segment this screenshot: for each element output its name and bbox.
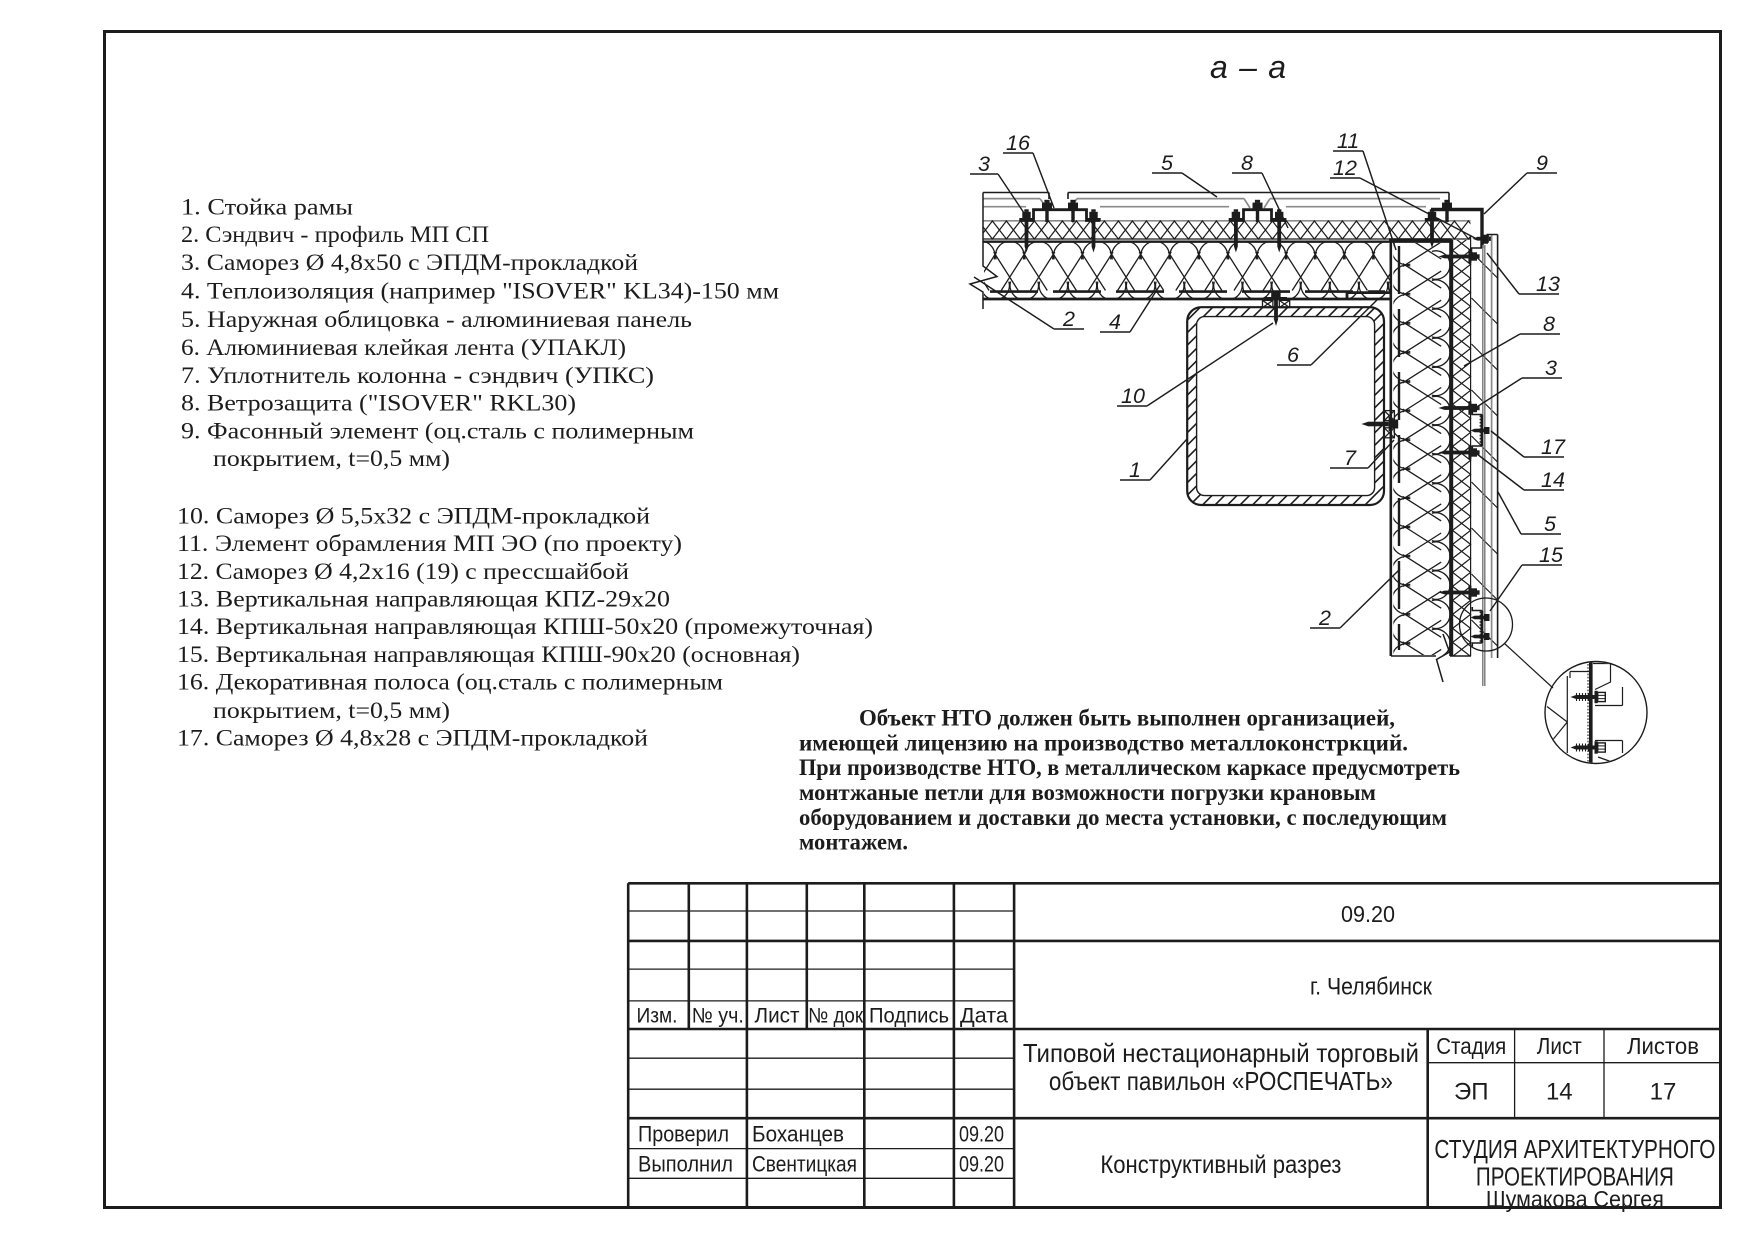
svg-text:Стадия: Стадия [1436,1033,1506,1059]
svg-text:Изм.: Изм. [637,1004,678,1027]
svg-text:14. Вертикальная направляющая: 14. Вертикальная направляющая КПШ-50х20 … [177,614,873,640]
svg-text:17. Саморез Ø 4,8х28 с ЭПДМ-пр: 17. Саморез Ø 4,8х28 с ЭПДМ-прокладкой [177,725,648,751]
svg-text:Конструктивный разрез: Конструктивный разрез [1100,1151,1341,1179]
svg-text:монтжаные петли для возможност: монтжаные петли для возможности погрузки… [799,780,1376,805]
svg-text:9: 9 [1536,151,1548,175]
svg-text:Дата: Дата [960,1004,1008,1027]
svg-text:1. Стойка рамы: 1. Стойка рамы [181,195,353,221]
svg-text:2: 2 [1062,307,1075,331]
svg-text:Лист: Лист [755,1004,800,1027]
svg-text:ЭП: ЭП [1454,1078,1489,1105]
svg-text:7: 7 [1344,446,1357,470]
svg-text:6: 6 [1287,343,1299,367]
svg-text:15. Вертикальная направляющая: 15. Вертикальная направляющая КПШ-90х20 … [177,642,800,668]
svg-text:Типовой нестационарный торговы: Типовой нестационарный торговый [1023,1038,1419,1068]
svg-text:14: 14 [1546,1078,1573,1105]
svg-text:09.20: 09.20 [959,1122,1004,1147]
svg-text:11. Элемент обрамления МП ЭО (: 11. Элемент обрамления МП ЭО (по проекту… [177,531,682,557]
svg-text:Подпись: Подпись [869,1004,949,1027]
svg-text:2: 2 [1318,606,1331,630]
svg-text:Боханцев: Боханцев [752,1122,844,1147]
svg-text:7. Уплотнитель колонна - сэндв: 7. Уплотнитель колонна - сэндвич (УПКС) [181,363,654,389]
svg-text:9. Фасонный элемент (оц.сталь: 9. Фасонный элемент (оц.сталь с полимерн… [181,419,694,445]
svg-text:монтажем.: монтажем. [799,830,908,855]
svg-text:4. Теплоизоляция (например "IS: 4. Теплоизоляция (например "ISOVER" KL34… [181,278,779,304]
svg-text:5: 5 [1544,512,1557,536]
svg-text:14: 14 [1541,468,1565,492]
svg-text:11: 11 [1337,129,1359,153]
svg-text:6. Алюминиевая клейкая лента (: 6. Алюминиевая клейкая лента (УПАКЛ) [181,335,626,361]
svg-text:8: 8 [1543,312,1555,336]
svg-text:№ уч.: № уч. [692,1004,744,1027]
svg-text:17: 17 [1541,435,1566,459]
svg-text:16: 16 [1006,131,1030,155]
svg-text:3: 3 [978,152,990,176]
svg-text:12: 12 [1333,156,1357,180]
svg-text:16. Декоративная полоса (оц.ст: 16. Декоративная полоса (оц.сталь с поли… [177,670,723,696]
svg-text:4: 4 [1109,310,1121,334]
svg-text:2. Сэндвич - профиль МП СП: 2. Сэндвич - профиль МП СП [181,222,489,248]
svg-text:3: 3 [1545,356,1557,380]
svg-text:12. Саморез Ø 4,2х16 (19) с пр: 12. Саморез Ø 4,2х16 (19) с прессшайбой [177,559,629,585]
svg-text:13. Вертикальная направляющая: 13. Вертикальная направляющая КПZ-29х20 [177,587,670,613]
svg-text:8. Ветрозащита ("ISOVER" RKL30: 8. Ветрозащита ("ISOVER" RKL30) [181,391,576,417]
svg-text:10. Саморез Ø 5,5х32 с ЭПДМ-пр: 10. Саморез Ø 5,5х32 с ЭПДМ-прокладкой [177,503,650,529]
svg-text:г. Челябинск: г. Челябинск [1310,973,1432,1000]
svg-text:09.20: 09.20 [959,1152,1004,1177]
svg-text:Листов: Листов [1627,1033,1699,1059]
svg-text:При производстве НТО, в металл: При производстве НТО, в металлическом ка… [799,755,1460,780]
svg-text:имеющей лицензию на производст: имеющей лицензию на производство металло… [799,730,1408,755]
svg-text:15: 15 [1539,543,1564,567]
svg-text:покрытием, t=0,5 мм): покрытием, t=0,5 мм) [213,698,450,724]
svg-text:8: 8 [1241,151,1253,175]
svg-text:Выполнил: Выполнил [638,1152,733,1177]
svg-text:Лист: Лист [1537,1033,1582,1059]
svg-text:объект павильон «РОСПЕЧАТЬ»: объект павильон «РОСПЕЧАТЬ» [1049,1066,1393,1096]
svg-text:Свентицкая: Свентицкая [752,1152,857,1177]
svg-text:оборудованием и доставки до ме: оборудованием и доставки до места устано… [799,805,1447,830]
svg-text:3. Саморез Ø 4,8х50 с ЭПДМ-про: 3. Саморез Ø 4,8х50 с ЭПДМ-прокладкой [181,250,638,276]
svg-text:№ док: № док [808,1004,864,1027]
svg-text:5. Наружная облицовка - алюмин: 5. Наружная облицовка - алюминиевая пане… [181,307,692,333]
svg-text:10: 10 [1121,384,1145,408]
svg-text:а – а: а – а [1210,49,1286,85]
svg-text:1: 1 [1129,458,1141,482]
svg-text:09.20: 09.20 [1341,901,1395,927]
svg-text:13: 13 [1536,272,1560,296]
svg-text:Шумакова Сергея: Шумакова Сергея [1486,1186,1664,1212]
svg-text:5: 5 [1161,151,1174,175]
svg-text:17: 17 [1650,1078,1677,1105]
svg-text:покрытием, t=0,5 мм): покрытием, t=0,5 мм) [213,446,450,472]
svg-text:СТУДИЯ АРХИТЕКТУРНОГО: СТУДИЯ АРХИТЕКТУРНОГО [1434,1134,1715,1164]
svg-text:Проверил: Проверил [638,1122,729,1147]
svg-text:Объект НТО должен быть выполн: Объект НТО должен быть выполнен организа… [859,706,1395,731]
